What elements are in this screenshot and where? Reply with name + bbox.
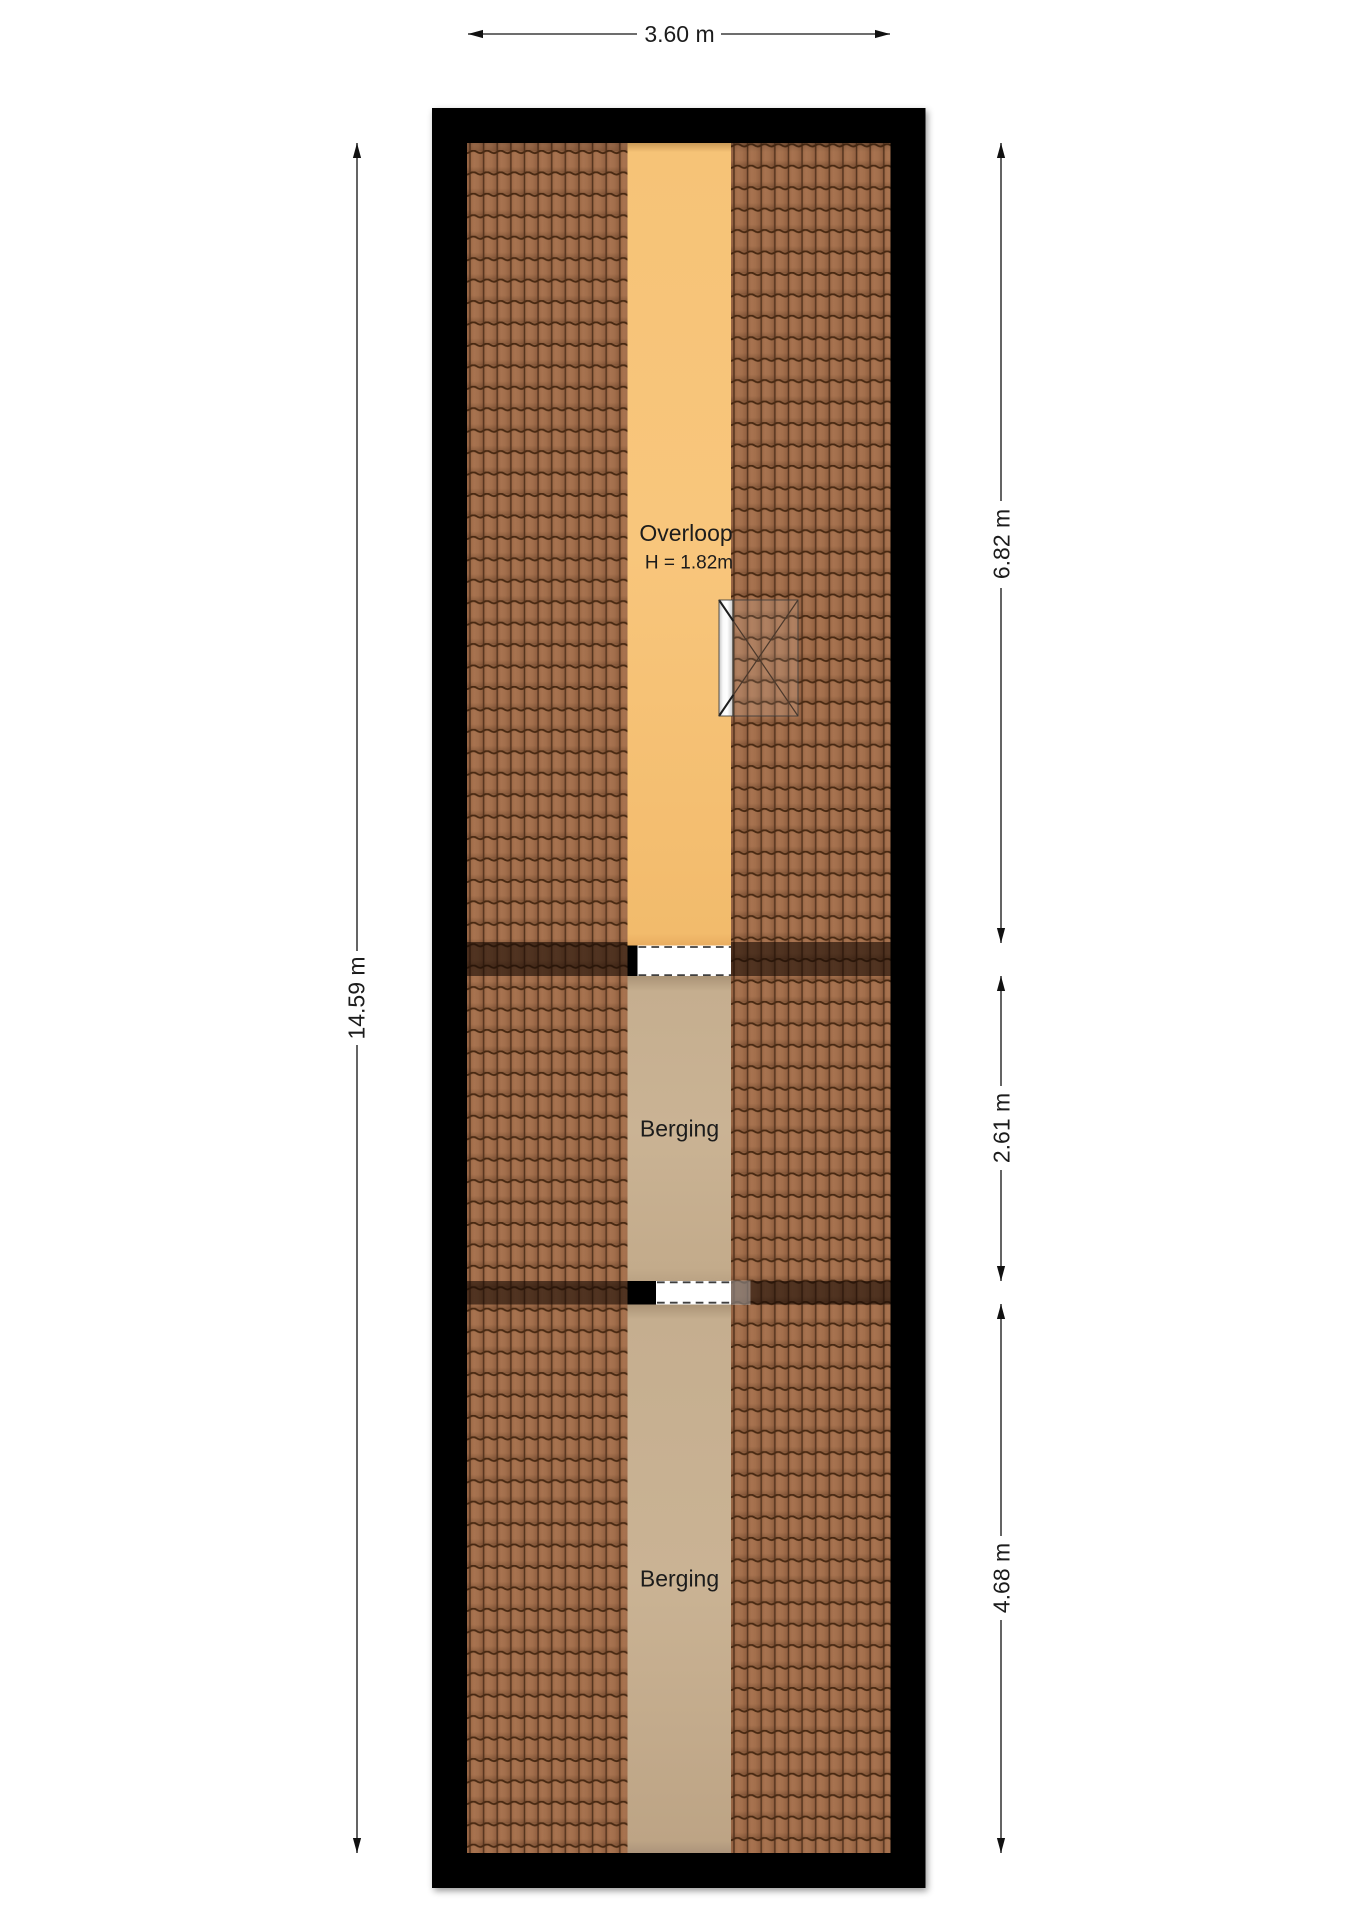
svg-text:14.59 m: 14.59 m [344,956,370,1039]
svg-text:2.61 m: 2.61 m [989,1093,1015,1163]
svg-text:4.68 m: 4.68 m [989,1543,1015,1613]
svg-text:Berging: Berging [640,1566,719,1592]
svg-text:H = 1.82m: H = 1.82m [645,552,733,573]
svg-text:Overloop: Overloop [639,520,732,546]
svg-text:Berging: Berging [640,1116,719,1142]
svg-text:6.82 m: 6.82 m [989,509,1015,579]
svg-text:3.60 m: 3.60 m [644,21,714,47]
